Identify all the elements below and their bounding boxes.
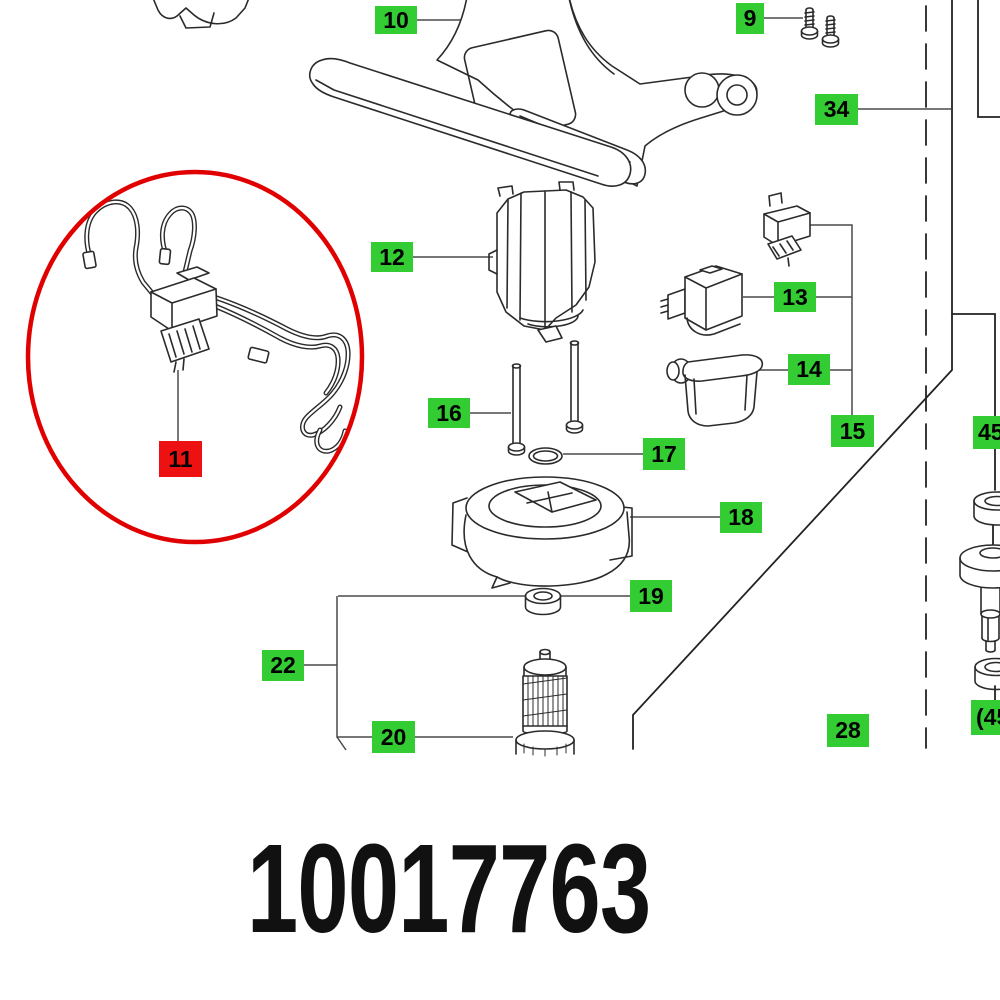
part-label-18[interactable]: 18	[720, 502, 762, 533]
part-label-10[interactable]: 10	[375, 6, 417, 34]
part-label-16[interactable]: 16	[428, 398, 470, 428]
part-label-14[interactable]: 14	[788, 354, 830, 385]
part-label-17[interactable]: 17	[643, 438, 685, 470]
part-label-45[interactable]: 45	[973, 416, 1000, 449]
part-label-22[interactable]: 22	[262, 650, 304, 681]
part-label-19[interactable]: 19	[630, 580, 672, 612]
part-label-13[interactable]: 13	[774, 282, 816, 312]
part-label-45b[interactable]: (45)	[971, 700, 1000, 735]
exploded-parts-diagram: 10934121314151617181922202845(45)11 1001…	[0, 0, 1000, 1000]
part-label-11-selected[interactable]: 11	[159, 441, 202, 477]
part-label-20[interactable]: 20	[372, 721, 415, 753]
part-label-12[interactable]: 12	[371, 242, 413, 272]
part-label-34[interactable]: 34	[815, 94, 858, 125]
part-number-text: 10017763	[247, 816, 650, 961]
part-label-15[interactable]: 15	[831, 415, 874, 447]
part-label-9[interactable]: 9	[736, 3, 764, 34]
part-label-28[interactable]: 28	[827, 714, 869, 747]
